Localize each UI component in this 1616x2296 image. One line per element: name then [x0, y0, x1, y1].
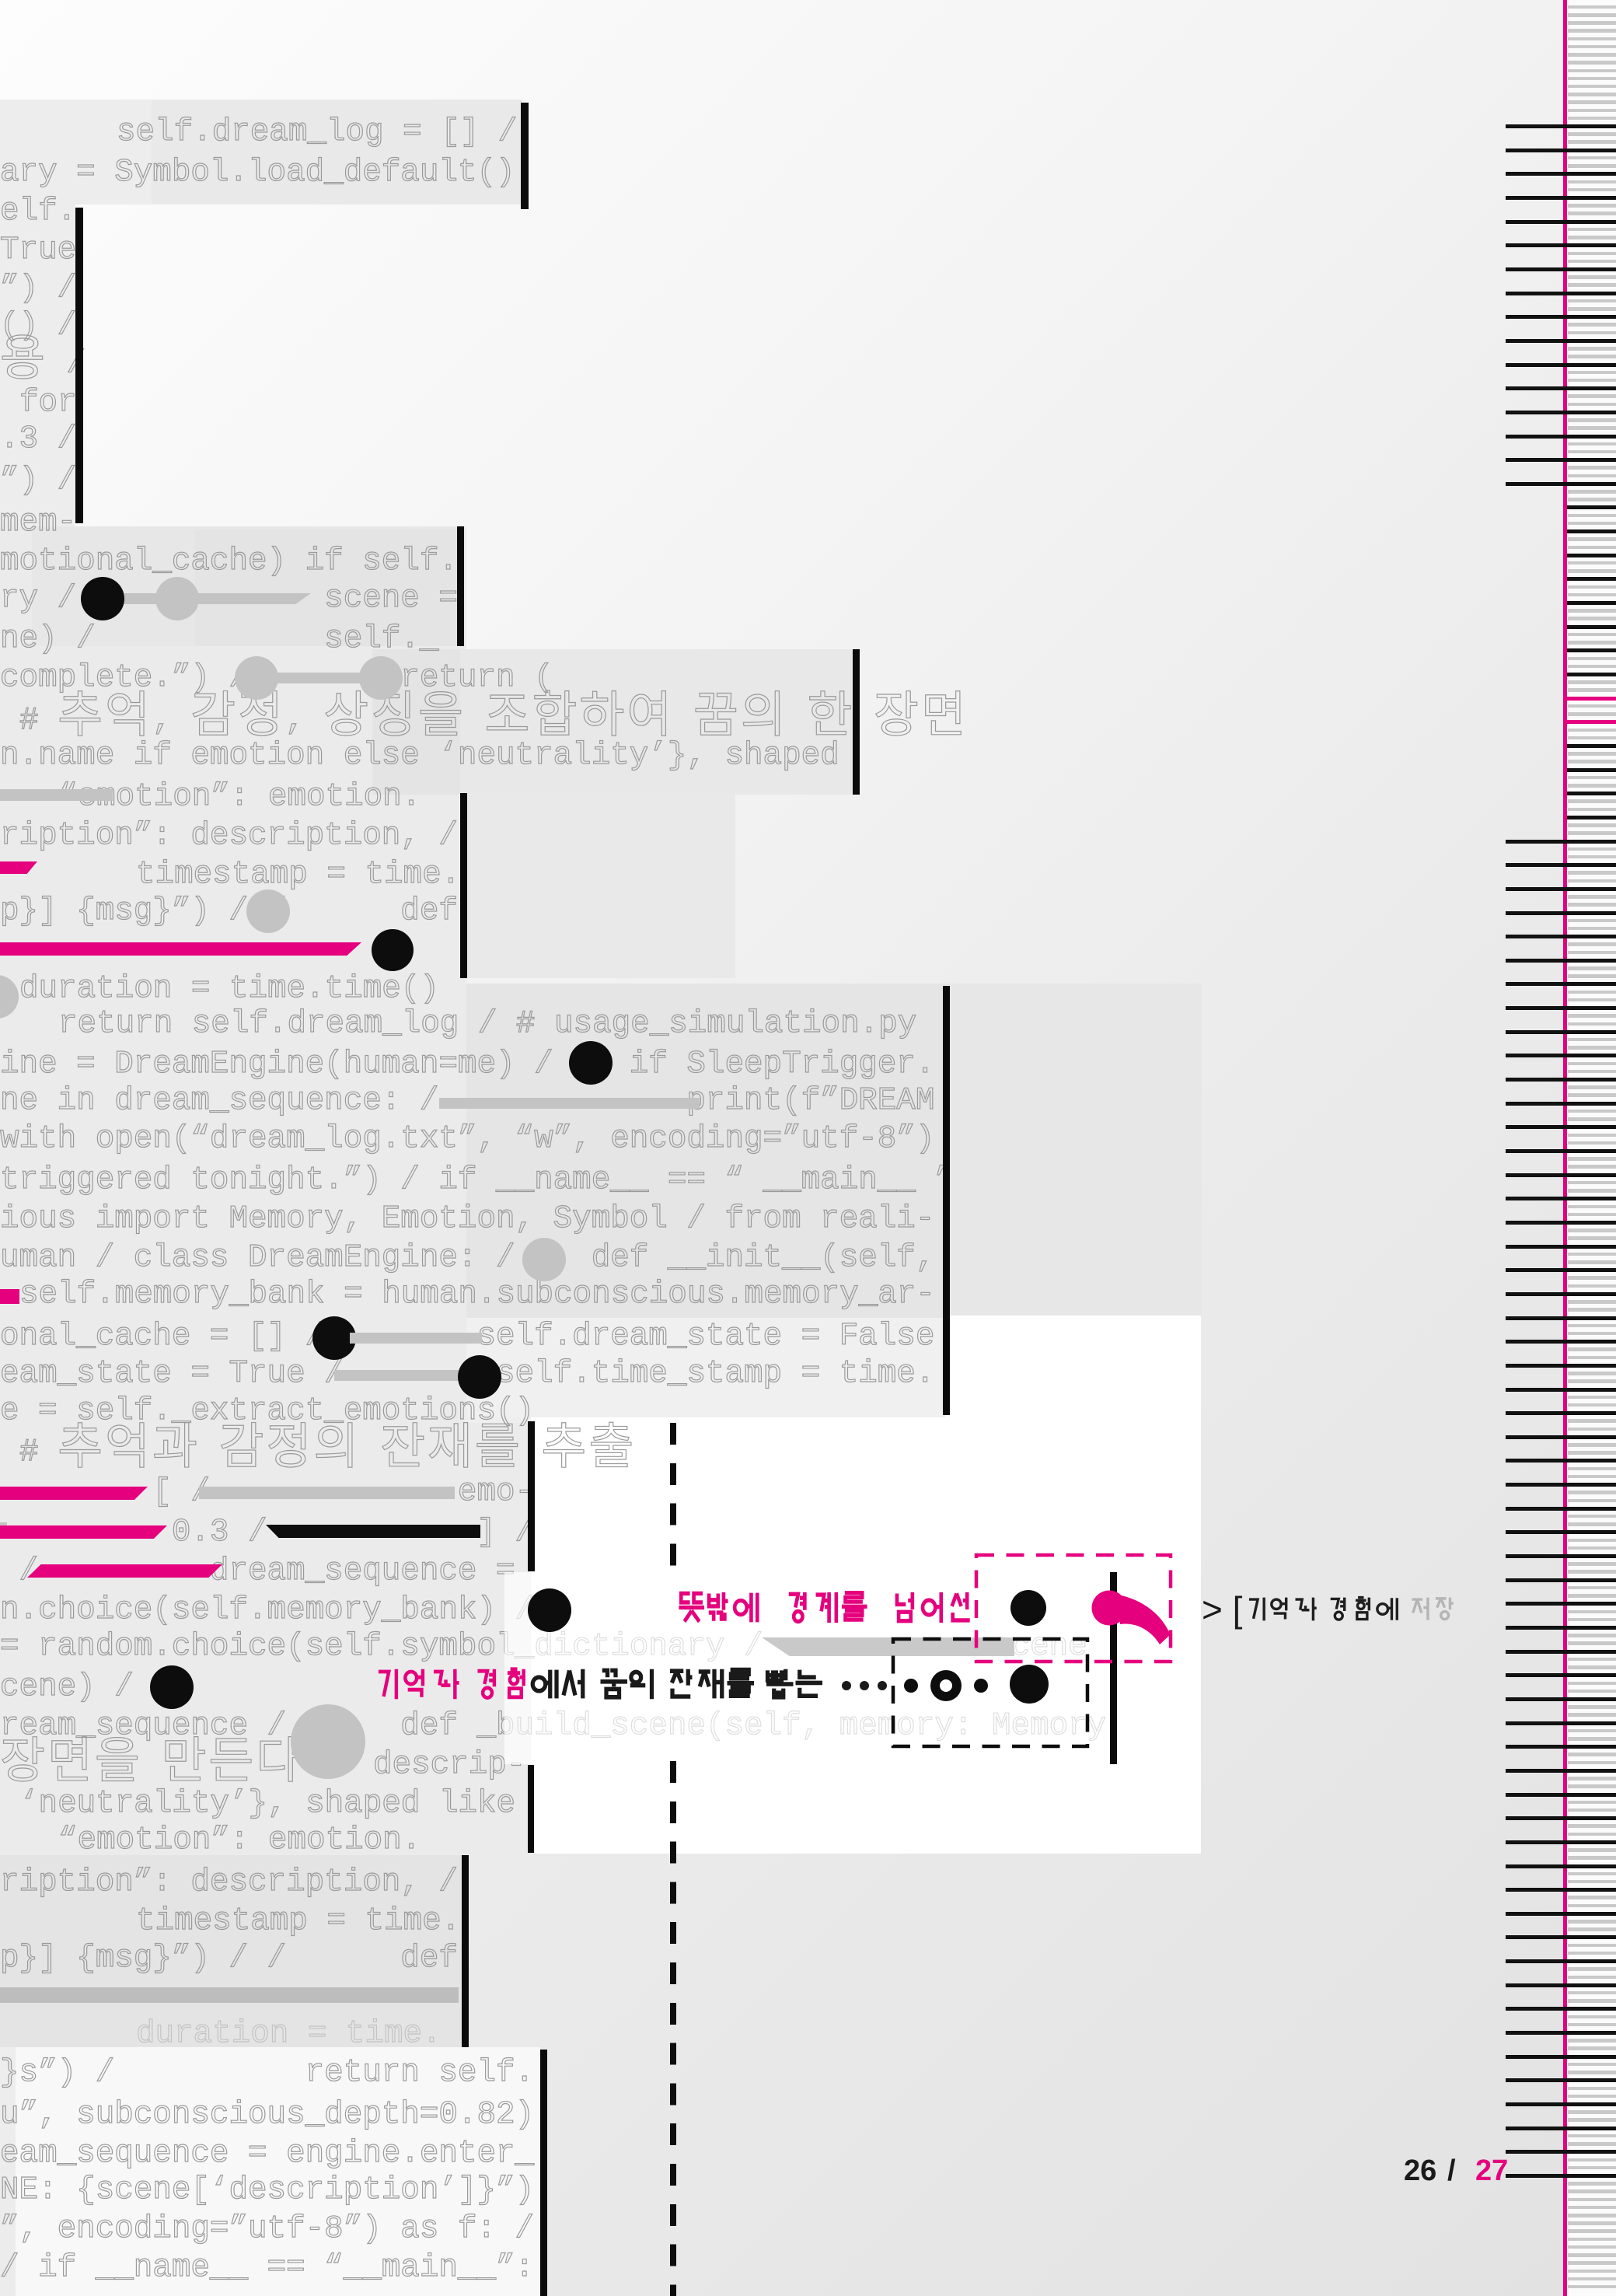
svg-text:> [: > [ [1202, 1589, 1243, 1630]
